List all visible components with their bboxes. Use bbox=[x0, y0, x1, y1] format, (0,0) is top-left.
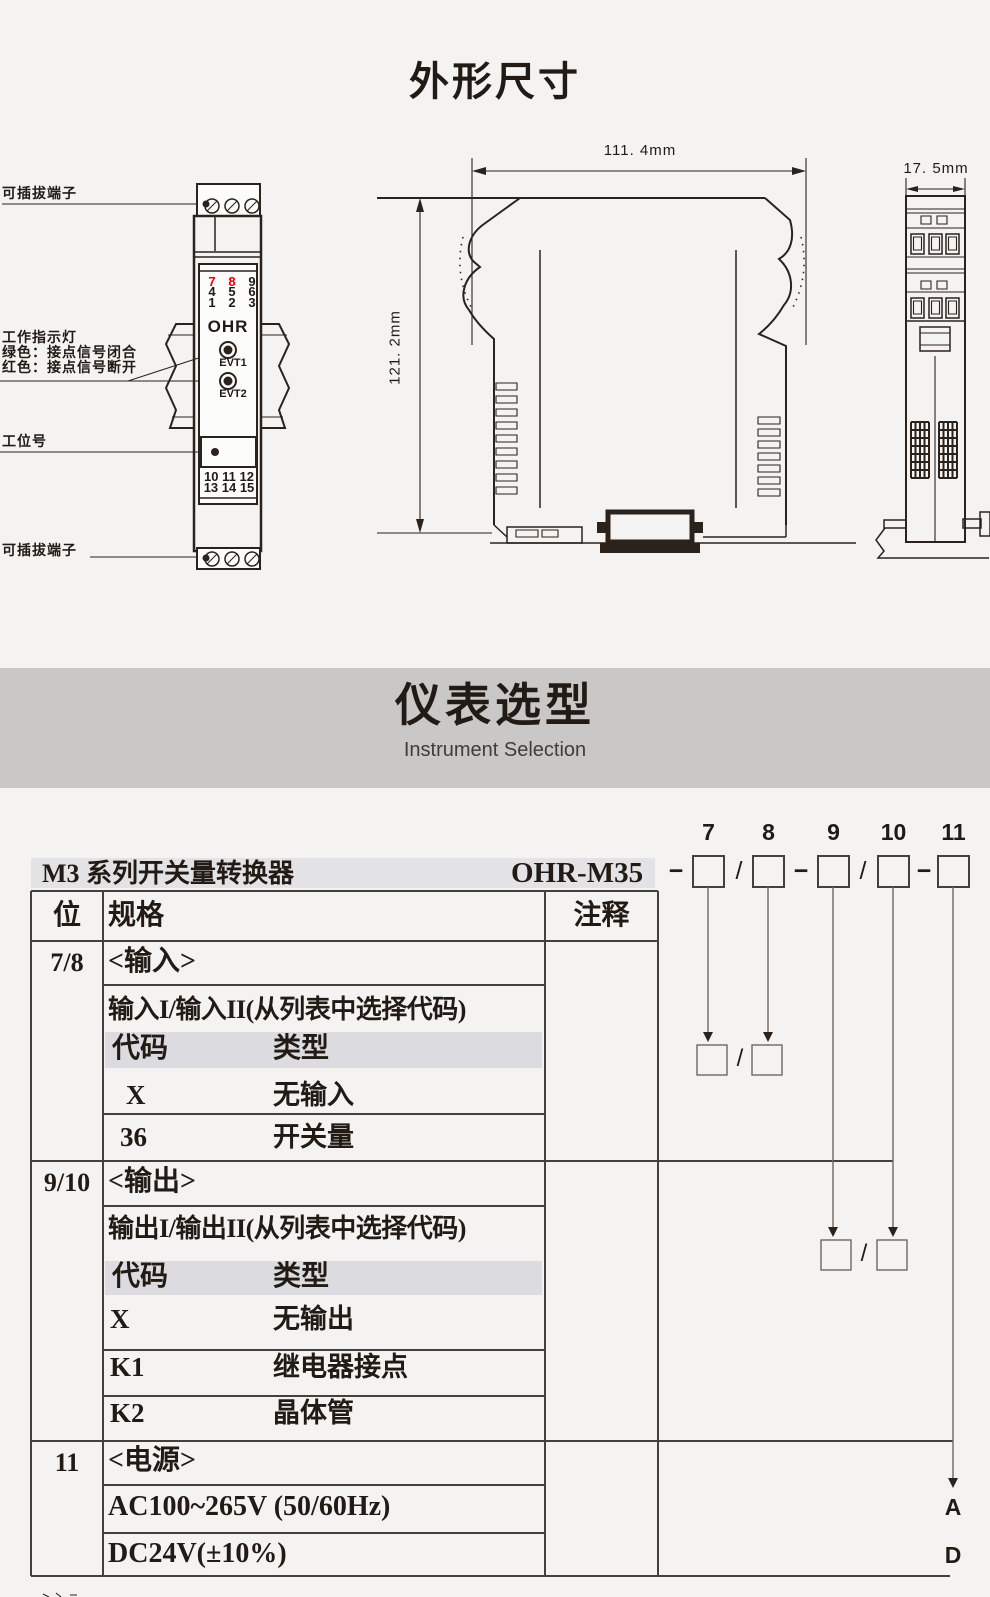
arrow-down-icon bbox=[703, 1032, 713, 1042]
code-slash-2: / bbox=[852, 859, 874, 884]
label-indicator-title: 工作指示灯 bbox=[2, 330, 77, 344]
code-dash-2: − bbox=[787, 856, 815, 887]
label-indicator-green: 绿色：接点信号闭合 bbox=[2, 345, 137, 359]
terminal-3: 3 bbox=[248, 298, 255, 308]
leader-dot-top bbox=[203, 201, 210, 208]
code-dash-3: − bbox=[910, 856, 938, 887]
col-header-spec: 规格 bbox=[108, 902, 164, 930]
type-cell: 无输入 bbox=[273, 1082, 354, 1109]
power-option-dc: DC24V(±10%) bbox=[108, 1540, 287, 1568]
terminal-1: 1 bbox=[208, 298, 215, 308]
leader-dot-bottom bbox=[203, 555, 210, 562]
section-title-output: <输出> bbox=[108, 1168, 196, 1196]
code-box-10 bbox=[878, 856, 909, 887]
type-cell: 无输出 bbox=[273, 1306, 354, 1333]
section-pos-11: 11 bbox=[31, 1450, 103, 1476]
selection-banner-title: 仪表选型 bbox=[0, 682, 990, 728]
led-label-evt2: EVT2 bbox=[202, 389, 264, 400]
module-front-drawing bbox=[0, 184, 289, 569]
power-code-d: D bbox=[941, 1544, 965, 1567]
leader-lines bbox=[0, 204, 221, 557]
output2-box bbox=[877, 1240, 907, 1270]
type-header-input: 类型 bbox=[273, 1035, 329, 1063]
code-box-7 bbox=[693, 856, 724, 887]
col-header-note: 注释 bbox=[545, 902, 658, 930]
module-narrow-drawing bbox=[876, 178, 990, 558]
model-number: OHR-M35 bbox=[511, 859, 643, 888]
arrow-left-icon bbox=[472, 167, 486, 175]
digit-label-7: 7 bbox=[693, 821, 724, 844]
type-cell: 继电器接点 bbox=[273, 1354, 408, 1381]
input2-box bbox=[752, 1045, 782, 1075]
digit-label-10: 10 bbox=[878, 821, 909, 844]
terminal-row-123: 1 2 3 bbox=[202, 298, 262, 308]
type-header-output: 类型 bbox=[273, 1263, 329, 1291]
outline-section-title: 外形尺寸 bbox=[0, 62, 990, 102]
selection-banner-subtitle: Instrument Selection bbox=[0, 740, 990, 760]
code-cell: K1 bbox=[110, 1354, 145, 1381]
terminal-2: 2 bbox=[228, 298, 235, 308]
code-cell: X bbox=[110, 1306, 130, 1333]
code-box-8 bbox=[753, 856, 784, 887]
type-cell: 开关量 bbox=[273, 1124, 354, 1151]
series-title: M3 系列开关量转换器 bbox=[42, 861, 294, 887]
side-window bbox=[920, 327, 950, 351]
label-pluggable-terminal-top: 可插拔端子 bbox=[2, 186, 77, 200]
vent-grid-right bbox=[939, 422, 957, 478]
brand-logo: OHR bbox=[197, 318, 259, 335]
arrow-right-icon bbox=[792, 167, 806, 175]
label-indicator-red: 红色：接点信号断开 bbox=[2, 360, 137, 374]
arrow-down-icon bbox=[416, 519, 424, 533]
arrow-down-icon bbox=[888, 1227, 898, 1237]
col-header-pos: 位 bbox=[31, 902, 103, 930]
label-pluggable-terminal-bottom: 可插拔端子 bbox=[2, 543, 77, 557]
din-rail-side bbox=[876, 512, 990, 558]
pair-slash-output: / bbox=[854, 1242, 874, 1266]
dimension-width: 111. 4mm bbox=[575, 143, 705, 158]
arrow-down-icon bbox=[828, 1227, 838, 1237]
arrow-down-icon bbox=[763, 1032, 773, 1042]
module-side-drawing bbox=[377, 158, 856, 553]
digit-label-8: 8 bbox=[753, 821, 784, 844]
din-rail-cross-section bbox=[597, 512, 703, 553]
cut-off-text-fragment bbox=[43, 1593, 77, 1597]
led-label-evt1: EVT1 bbox=[202, 358, 264, 369]
din-rail-left bbox=[166, 324, 194, 428]
code-box-11 bbox=[938, 856, 969, 887]
rail-latch bbox=[507, 527, 582, 543]
input1-box bbox=[697, 1045, 727, 1075]
vent-grid-left bbox=[911, 422, 929, 478]
dimension-height: 121. 2mm bbox=[388, 303, 403, 393]
pair-slash-input: / bbox=[730, 1047, 750, 1071]
vent-slots-right bbox=[758, 417, 780, 496]
dimension-depth: 17. 5mm bbox=[901, 161, 971, 176]
code-header-output: 代码 bbox=[112, 1263, 168, 1291]
code-cell: K2 bbox=[110, 1400, 145, 1427]
terminal-row-131415: 13 14 15 bbox=[198, 481, 260, 494]
section-pos-78: 7/8 bbox=[31, 950, 103, 976]
section-title-input: <输入> bbox=[108, 948, 196, 976]
arrow-down-icon bbox=[948, 1478, 958, 1488]
section-pos-910: 9/10 bbox=[31, 1170, 103, 1196]
code-dash-1: − bbox=[662, 856, 690, 887]
section-title-power: <电源> bbox=[108, 1447, 196, 1475]
label-station-number: 工位号 bbox=[2, 434, 47, 448]
code-cell: 36 bbox=[120, 1124, 147, 1151]
output1-box bbox=[821, 1240, 851, 1270]
section-subtitle-input: 输入I/输入II(从列表中选择代码) bbox=[108, 997, 466, 1023]
din-rail-right bbox=[261, 324, 289, 428]
code-header-input: 代码 bbox=[112, 1035, 168, 1063]
line-art-layer bbox=[0, 0, 990, 1597]
digit-label-11: 11 bbox=[938, 821, 969, 844]
power-code-a: A bbox=[941, 1496, 965, 1519]
power-option-ac: AC100~265V (50/60Hz) bbox=[108, 1493, 390, 1521]
rear-claw-right bbox=[759, 198, 792, 525]
type-cell: 晶体管 bbox=[273, 1400, 354, 1427]
leader-dot-station bbox=[211, 448, 219, 456]
code-box-9 bbox=[818, 856, 849, 887]
claw-texture-right bbox=[793, 237, 804, 307]
code-slash-1: / bbox=[728, 859, 750, 884]
digit-label-9: 9 bbox=[818, 821, 849, 844]
model-code-diagram bbox=[693, 856, 969, 1488]
datasheet-page: 外形尺寸 可插拔端子 工作指示灯 绿色：接点信号闭合 红色：接点信号断开 工位号… bbox=[0, 0, 990, 1597]
arrow-up-icon bbox=[416, 198, 424, 212]
vent-slots-left bbox=[496, 383, 517, 494]
code-cell: X bbox=[126, 1082, 146, 1109]
section-subtitle-output: 输出I/输出II(从列表中选择代码) bbox=[108, 1216, 466, 1242]
terminal-number-grid: 7 8 9 4 5 6 1 2 3 bbox=[202, 277, 262, 308]
